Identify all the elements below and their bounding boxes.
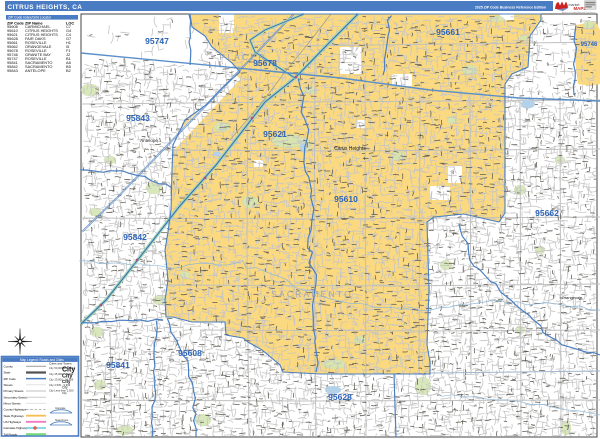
svg-text:Minor Streets: Minor Streets [4,402,22,406]
svg-text:95608: 95608 [178,348,202,358]
svg-text:County: County [4,365,14,369]
svg-text:State: State [4,371,11,375]
svg-text:ANTELOPE: ANTELOPE [25,68,46,73]
svg-text:Interstate Highways: Interstate Highways [4,426,30,430]
svg-text:Cities and Towns: Cities and Towns [49,362,72,366]
svg-text:PLACER: PLACER [219,52,266,62]
svg-text:Primary Streets: Primary Streets [4,389,24,393]
svg-text:95628: 95628 [328,392,352,402]
svg-text:State Highways: State Highways [4,414,25,418]
svg-text:95841: 95841 [106,360,130,370]
svg-text:95661: 95661 [436,27,460,37]
svg-text:Toll Roads: Toll Roads [4,432,18,436]
svg-text:Secondary Streets: Secondary Streets [4,395,28,399]
svg-text:95747: 95747 [145,36,169,46]
svg-text:95843: 95843 [126,113,150,123]
svg-text:95842: 95842 [123,232,147,242]
svg-text:Citrus Heights: Citrus Heights [334,146,366,152]
svg-text:County Highways: County Highways [4,408,27,412]
svg-text:95621: 95621 [263,129,287,139]
svg-text:Interstate: Interstate [55,407,66,410]
svg-text:State Route: State Route [55,419,69,422]
svg-text:Antelope: Antelope [140,138,158,143]
svg-text:ZIP Code: ZIP Code [4,377,17,381]
svg-text:B2: B2 [66,68,71,73]
svg-text:Streets: Streets [4,383,14,387]
svg-text:95662: 95662 [535,208,559,218]
svg-text:Orangevale: Orangevale [562,295,583,300]
svg-text:SACRAMENTO: SACRAMENTO [271,289,353,299]
svg-text:US Highways: US Highways [4,420,22,424]
svg-text:95746: 95746 [581,42,598,48]
svg-text:ZIP Code Index/Grid Locator: ZIP Code Index/Grid Locator [8,16,52,20]
svg-text:City: City [62,391,67,395]
svg-text:95610: 95610 [334,194,358,204]
svg-text:95843: 95843 [7,68,18,73]
